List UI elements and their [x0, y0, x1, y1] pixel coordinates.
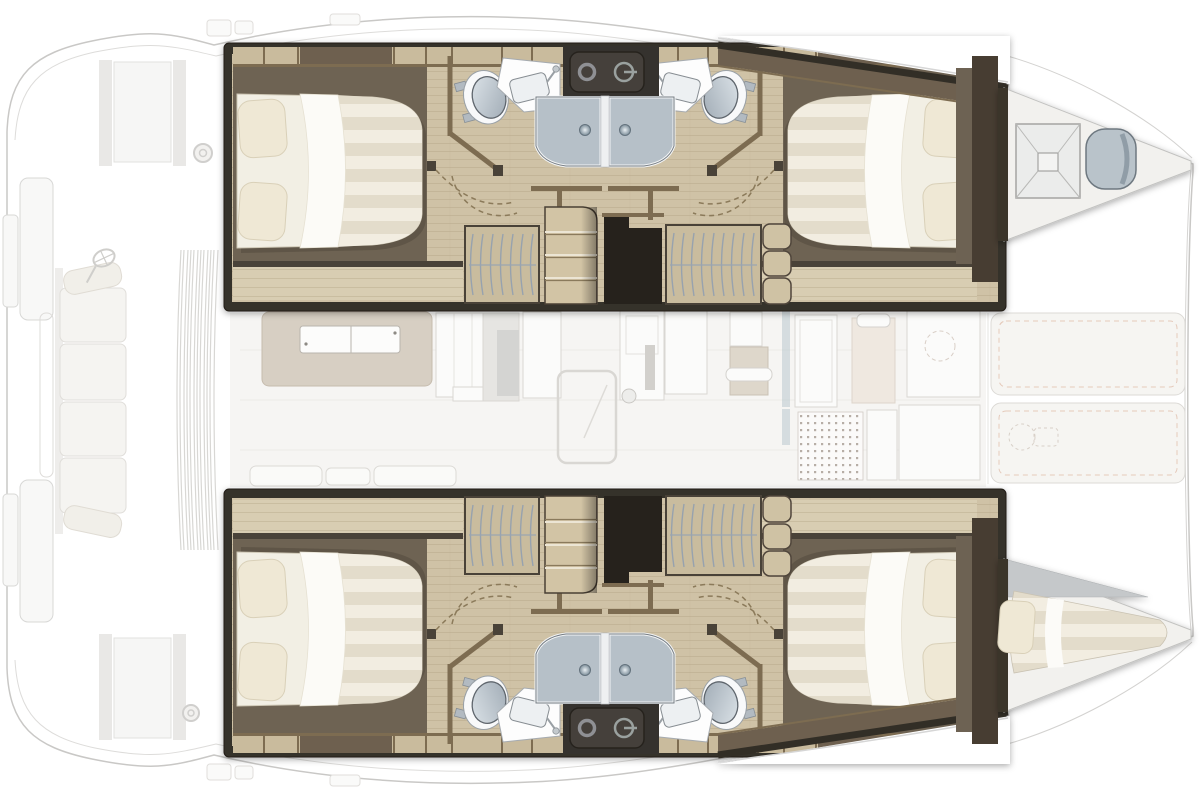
deck-fitting-icon [183, 705, 199, 721]
deck-fitting-icon [194, 144, 212, 162]
door-knob [622, 389, 636, 403]
hull-lower [224, 489, 1010, 764]
shower-grate [798, 412, 863, 480]
bow-seat [1086, 129, 1136, 189]
saloon-bench-cushions [250, 466, 456, 486]
hull-upper [224, 36, 1010, 311]
escape-hatch-icon [1016, 124, 1080, 198]
aft-cockpit-bench [55, 261, 126, 540]
pillow [997, 600, 1036, 654]
floor-plan-image [0, 0, 1200, 800]
saloon-table [300, 326, 400, 353]
